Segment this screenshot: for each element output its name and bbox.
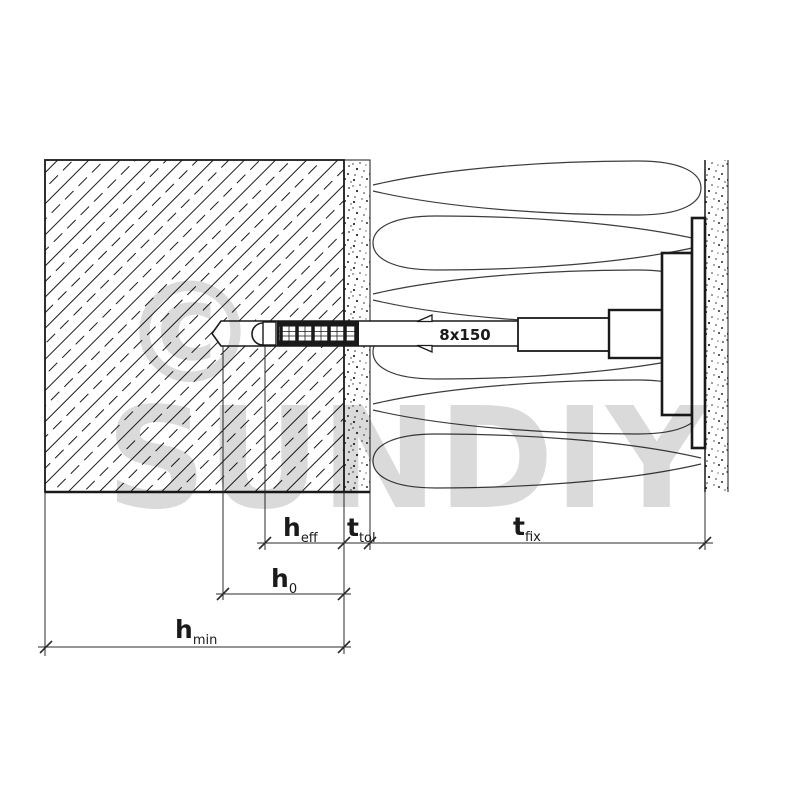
anchor-installation-diagram: heff ttol tfix h0 hmin	[0, 0, 800, 800]
expansion-sleeve	[278, 322, 358, 346]
watermark-brand-text: SUNDIY	[106, 378, 709, 541]
screw-head-collar	[263, 322, 276, 345]
sleeve-section-large	[609, 310, 662, 358]
anchor-size-label: 8x150	[439, 326, 490, 344]
facade-stipple	[705, 160, 728, 492]
sleeve-section-small	[518, 318, 609, 351]
facade-render-layer	[705, 160, 728, 492]
technical-drawing-canvas: heff ttol tfix h0 hmin	[0, 0, 800, 800]
